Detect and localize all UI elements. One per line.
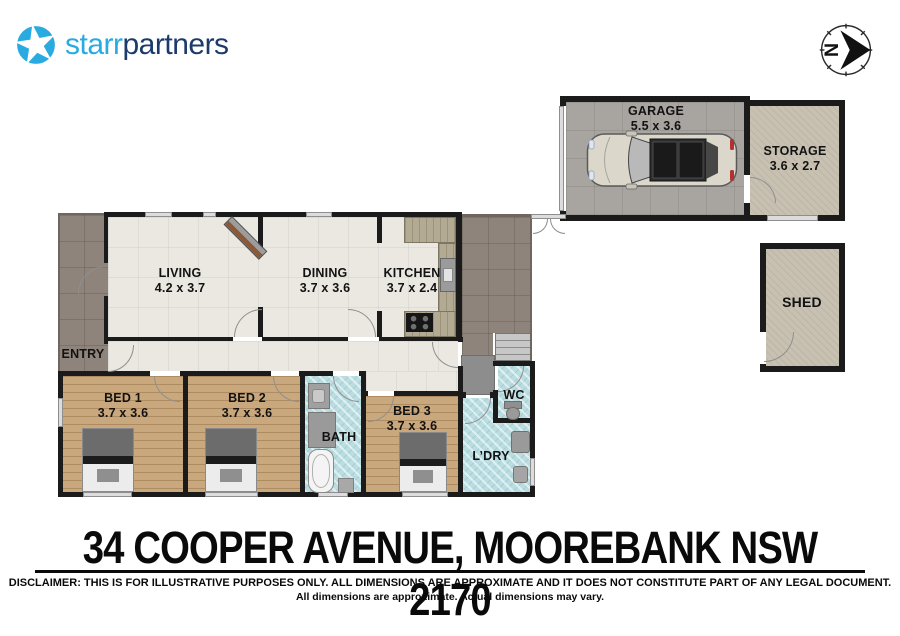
back-door-opening <box>530 458 535 486</box>
window <box>306 212 332 217</box>
window <box>58 398 63 427</box>
bath-vanity-basin <box>312 389 325 403</box>
bed-head <box>206 429 256 457</box>
wall-segment <box>180 371 271 376</box>
shed-label: SHED <box>762 295 842 310</box>
wall-segment <box>530 486 535 497</box>
wall-segment <box>58 492 83 497</box>
room-dims: 3.7 x 3.6 <box>275 281 375 296</box>
room-name: BED 2 <box>197 391 297 406</box>
window <box>402 492 448 497</box>
garage-roller-door <box>559 106 564 211</box>
wall-segment <box>560 96 750 102</box>
window <box>203 212 216 217</box>
bed2-bed <box>205 428 257 492</box>
bed-footstool <box>220 469 242 483</box>
wall-segment <box>458 337 463 342</box>
kitchen-counter-top <box>404 217 456 243</box>
wall-segment <box>377 311 382 337</box>
bed1-bed <box>82 428 134 492</box>
room-name: WC <box>498 388 530 403</box>
wall-segment <box>132 492 205 497</box>
car-top-view <box>586 130 738 190</box>
exterior-steps <box>495 333 531 361</box>
wall-segment <box>58 371 150 376</box>
patio-floor <box>462 217 530 333</box>
wall-segment <box>530 361 535 458</box>
toilet-bowl <box>506 407 520 420</box>
bed-band <box>400 459 446 467</box>
room-dims: 5.5 x 3.6 <box>606 119 706 134</box>
cooktop <box>406 313 433 332</box>
property-address: 34 COOPER AVENUE, MOOREBANK NSW 2170 <box>68 522 833 626</box>
wall-segment <box>560 215 767 221</box>
french-door-arc <box>533 219 548 234</box>
wall-segment <box>760 366 845 372</box>
wall-segment <box>104 337 233 341</box>
laundry-label: L’DRY <box>458 449 524 464</box>
window <box>145 212 172 217</box>
room-dims: 3.7 x 3.6 <box>73 406 173 421</box>
wall-segment <box>744 203 750 221</box>
french-door-arc <box>550 219 565 234</box>
room-dims: 3.7 x 2.4 <box>370 281 454 296</box>
room-name: ENTRY <box>59 347 107 362</box>
wall-segment <box>58 427 63 497</box>
room-name: KITCHEN <box>370 266 454 281</box>
hallway-floor <box>108 341 458 371</box>
bed-head <box>83 429 133 457</box>
wall-segment <box>379 337 462 341</box>
wall-segment <box>183 376 188 492</box>
room-dims: 4.2 x 3.7 <box>130 281 230 296</box>
wall-segment <box>262 337 348 341</box>
living-label: LIVING 4.2 x 3.7 <box>130 266 230 296</box>
room-name: STORAGE <box>745 144 845 159</box>
bathtub-basin <box>312 454 330 488</box>
bed3-bed <box>399 432 447 492</box>
garage-label: GARAGE 5.5 x 3.6 <box>606 104 706 134</box>
bed1-label: BED 1 3.7 x 3.6 <box>73 391 173 421</box>
wall-segment <box>818 215 845 221</box>
wall-segment <box>258 492 318 497</box>
wall-segment <box>300 376 305 492</box>
patio-floor-lower <box>462 333 493 357</box>
footer-divider <box>35 570 865 573</box>
room-name: BATH <box>316 430 362 445</box>
room-name: DINING <box>275 266 375 281</box>
patio-edge <box>530 215 532 361</box>
room-name: BED 1 <box>73 391 173 406</box>
wall-segment <box>377 217 382 243</box>
wall-segment <box>348 492 402 497</box>
room-dims: 3.7 x 3.6 <box>362 419 462 434</box>
bathtub <box>308 449 334 493</box>
wall-segment <box>394 391 463 396</box>
kitchen-label: KITCHEN 3.7 x 2.4 <box>370 266 454 296</box>
wall-segment <box>458 366 463 391</box>
room-name: SHED <box>762 295 842 310</box>
bed-footstool <box>413 470 433 483</box>
bed-band <box>83 456 133 464</box>
landing-mat <box>461 355 495 395</box>
window <box>205 492 258 497</box>
disclaimer-line1: DISCLAIMER: THIS IS FOR ILLUSTRATIVE PUR… <box>0 577 900 589</box>
floorplan-page: starrpartners N <box>0 0 900 636</box>
wall-segment <box>58 371 63 398</box>
bath-mat <box>338 478 354 493</box>
wall-segment <box>760 243 845 249</box>
porch-edge <box>58 213 106 215</box>
wall-segment <box>760 243 766 332</box>
laundry-tub <box>513 466 528 483</box>
window <box>83 492 132 497</box>
bed-footstool <box>97 469 119 483</box>
bed3-label: BED 3 3.7 x 3.6 <box>362 404 462 434</box>
entry-label: ENTRY <box>59 347 107 362</box>
bed-head <box>400 433 446 459</box>
disclaimer-line2: All dimensions are approximate. Actual d… <box>0 591 900 603</box>
dining-label: DINING 3.7 x 3.6 <box>275 266 375 296</box>
wall-segment <box>744 100 845 106</box>
storage-rear-opening <box>767 215 818 221</box>
wall-segment <box>560 96 566 106</box>
room-dims: 3.6 x 2.7 <box>745 159 845 174</box>
room-dims: 3.7 x 3.6 <box>197 406 297 421</box>
room-name: LIVING <box>130 266 230 281</box>
hallway-corridor-floor <box>366 371 458 391</box>
patio-edge <box>462 214 532 217</box>
bath-label: BATH <box>316 430 362 445</box>
room-name: GARAGE <box>606 104 706 119</box>
wall-segment <box>456 212 462 341</box>
room-name: BED 3 <box>362 404 462 419</box>
wall-segment <box>490 392 498 398</box>
wc-label: WC <box>498 388 530 403</box>
wall-segment <box>104 217 108 263</box>
storage-label: STORAGE 3.6 x 2.7 <box>745 144 845 174</box>
bed-band <box>206 456 256 464</box>
room-name: L’DRY <box>458 449 524 464</box>
bed2-label: BED 2 3.7 x 3.6 <box>197 391 297 421</box>
